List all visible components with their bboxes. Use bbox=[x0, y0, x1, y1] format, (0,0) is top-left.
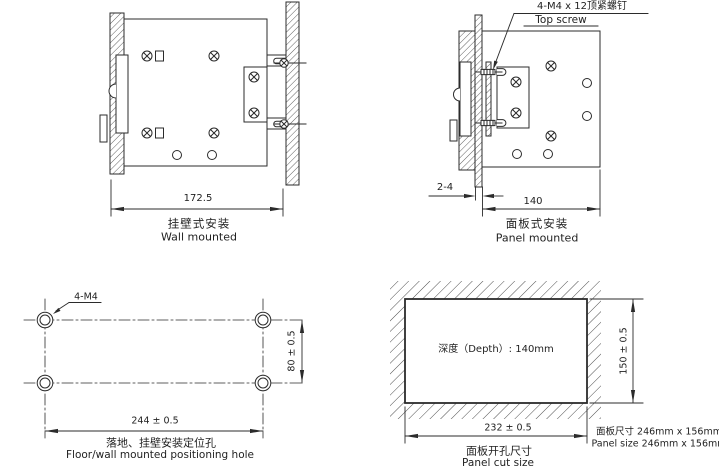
positioning-hole-icon bbox=[37, 312, 53, 328]
round-hole-icon bbox=[544, 150, 553, 159]
slot-opening bbox=[156, 51, 164, 61]
m4-callout-label: 4-M4 bbox=[74, 292, 98, 302]
bracket-clip bbox=[454, 88, 460, 101]
panel-section bbox=[475, 15, 482, 187]
screw-head-icon bbox=[209, 51, 219, 61]
panel-size-label-zh: 面板尺寸 246mm x 156mm bbox=[596, 427, 719, 437]
dim-depth-value: 140 bbox=[523, 197, 542, 207]
positioning-hole-icon bbox=[255, 375, 271, 391]
panel-mounted-label-zh: 面板式安装 bbox=[506, 218, 569, 230]
screw-head-icon bbox=[142, 51, 152, 61]
panel-size-label-en: Panel size 246mm x 156mm bbox=[591, 439, 719, 449]
dimension-140 bbox=[483, 170, 601, 216]
dim-150-value: 150 ± 0.5 bbox=[619, 327, 629, 374]
screw-head-icon bbox=[209, 128, 219, 138]
dim-232-value: 232 ± 0.5 bbox=[484, 423, 531, 433]
round-hole-icon bbox=[513, 150, 522, 159]
screw-head-icon bbox=[511, 77, 521, 87]
positioning-holes-label-zh: 落地、挂壁安装定位孔 bbox=[106, 438, 216, 449]
panel-mounted-diagram bbox=[429, 14, 648, 217]
dim-panel-thickness-value: 2-4 bbox=[437, 183, 453, 193]
right-wall-section bbox=[286, 2, 299, 185]
rear-tab bbox=[450, 120, 457, 141]
screw-head-icon bbox=[249, 108, 259, 118]
round-hole-icon bbox=[583, 112, 592, 121]
rear-tab bbox=[100, 115, 107, 142]
panel-cut-label-en: Panel cut size bbox=[462, 458, 534, 469]
screw-head-icon bbox=[511, 108, 521, 118]
wall-mounted-label-zh: 挂壁式安装 bbox=[168, 218, 231, 230]
dim-width-value: 172.5 bbox=[184, 194, 213, 204]
round-hole-icon bbox=[208, 151, 217, 160]
screw-head-icon bbox=[142, 128, 152, 138]
slot-opening bbox=[156, 128, 164, 138]
panel-cut-label-zh: 面板开孔尺寸 bbox=[466, 446, 532, 457]
dimension-244 bbox=[45, 429, 263, 433]
round-hole-icon bbox=[173, 151, 182, 160]
clamp-bracket bbox=[497, 67, 529, 128]
dim-80-value: 80 ± 0.5 bbox=[287, 330, 297, 371]
drawing-linework bbox=[0, 0, 719, 474]
installation-drawing-page: 172.5 挂壁式安装 Wall mounted 4-M4 x 12顶紧螺钉 T… bbox=[0, 0, 719, 474]
screw-head-icon bbox=[546, 61, 556, 71]
screw-head-icon bbox=[249, 72, 259, 82]
top-screw-callout-zh: 4-M4 x 12顶紧螺钉 bbox=[537, 2, 627, 12]
top-screw-callout-en: Top screw bbox=[535, 15, 586, 26]
positioning-hole-icon bbox=[37, 375, 53, 391]
depth-note: 深度（Depth）: 140mm bbox=[438, 345, 554, 355]
round-hole-icon bbox=[583, 79, 592, 88]
wall-bracket bbox=[460, 62, 471, 136]
m4-callout-leader bbox=[53, 303, 101, 315]
positioning-hole-icon bbox=[255, 312, 271, 328]
panel-mounted-label-en: Panel mounted bbox=[496, 233, 579, 244]
dim-244-value: 244 ± 0.5 bbox=[131, 416, 178, 426]
wall-mounted-diagram bbox=[100, 2, 306, 216]
panel-cut-diagram bbox=[390, 281, 643, 443]
positioning-holes-label-en: Floor/wall mounted positioning hole bbox=[66, 450, 254, 461]
wall-bracket bbox=[116, 55, 128, 133]
screw-head-icon bbox=[546, 131, 556, 141]
wall-mounted-label-en: Wall mounted bbox=[161, 232, 237, 243]
dimension-80 bbox=[300, 320, 304, 383]
